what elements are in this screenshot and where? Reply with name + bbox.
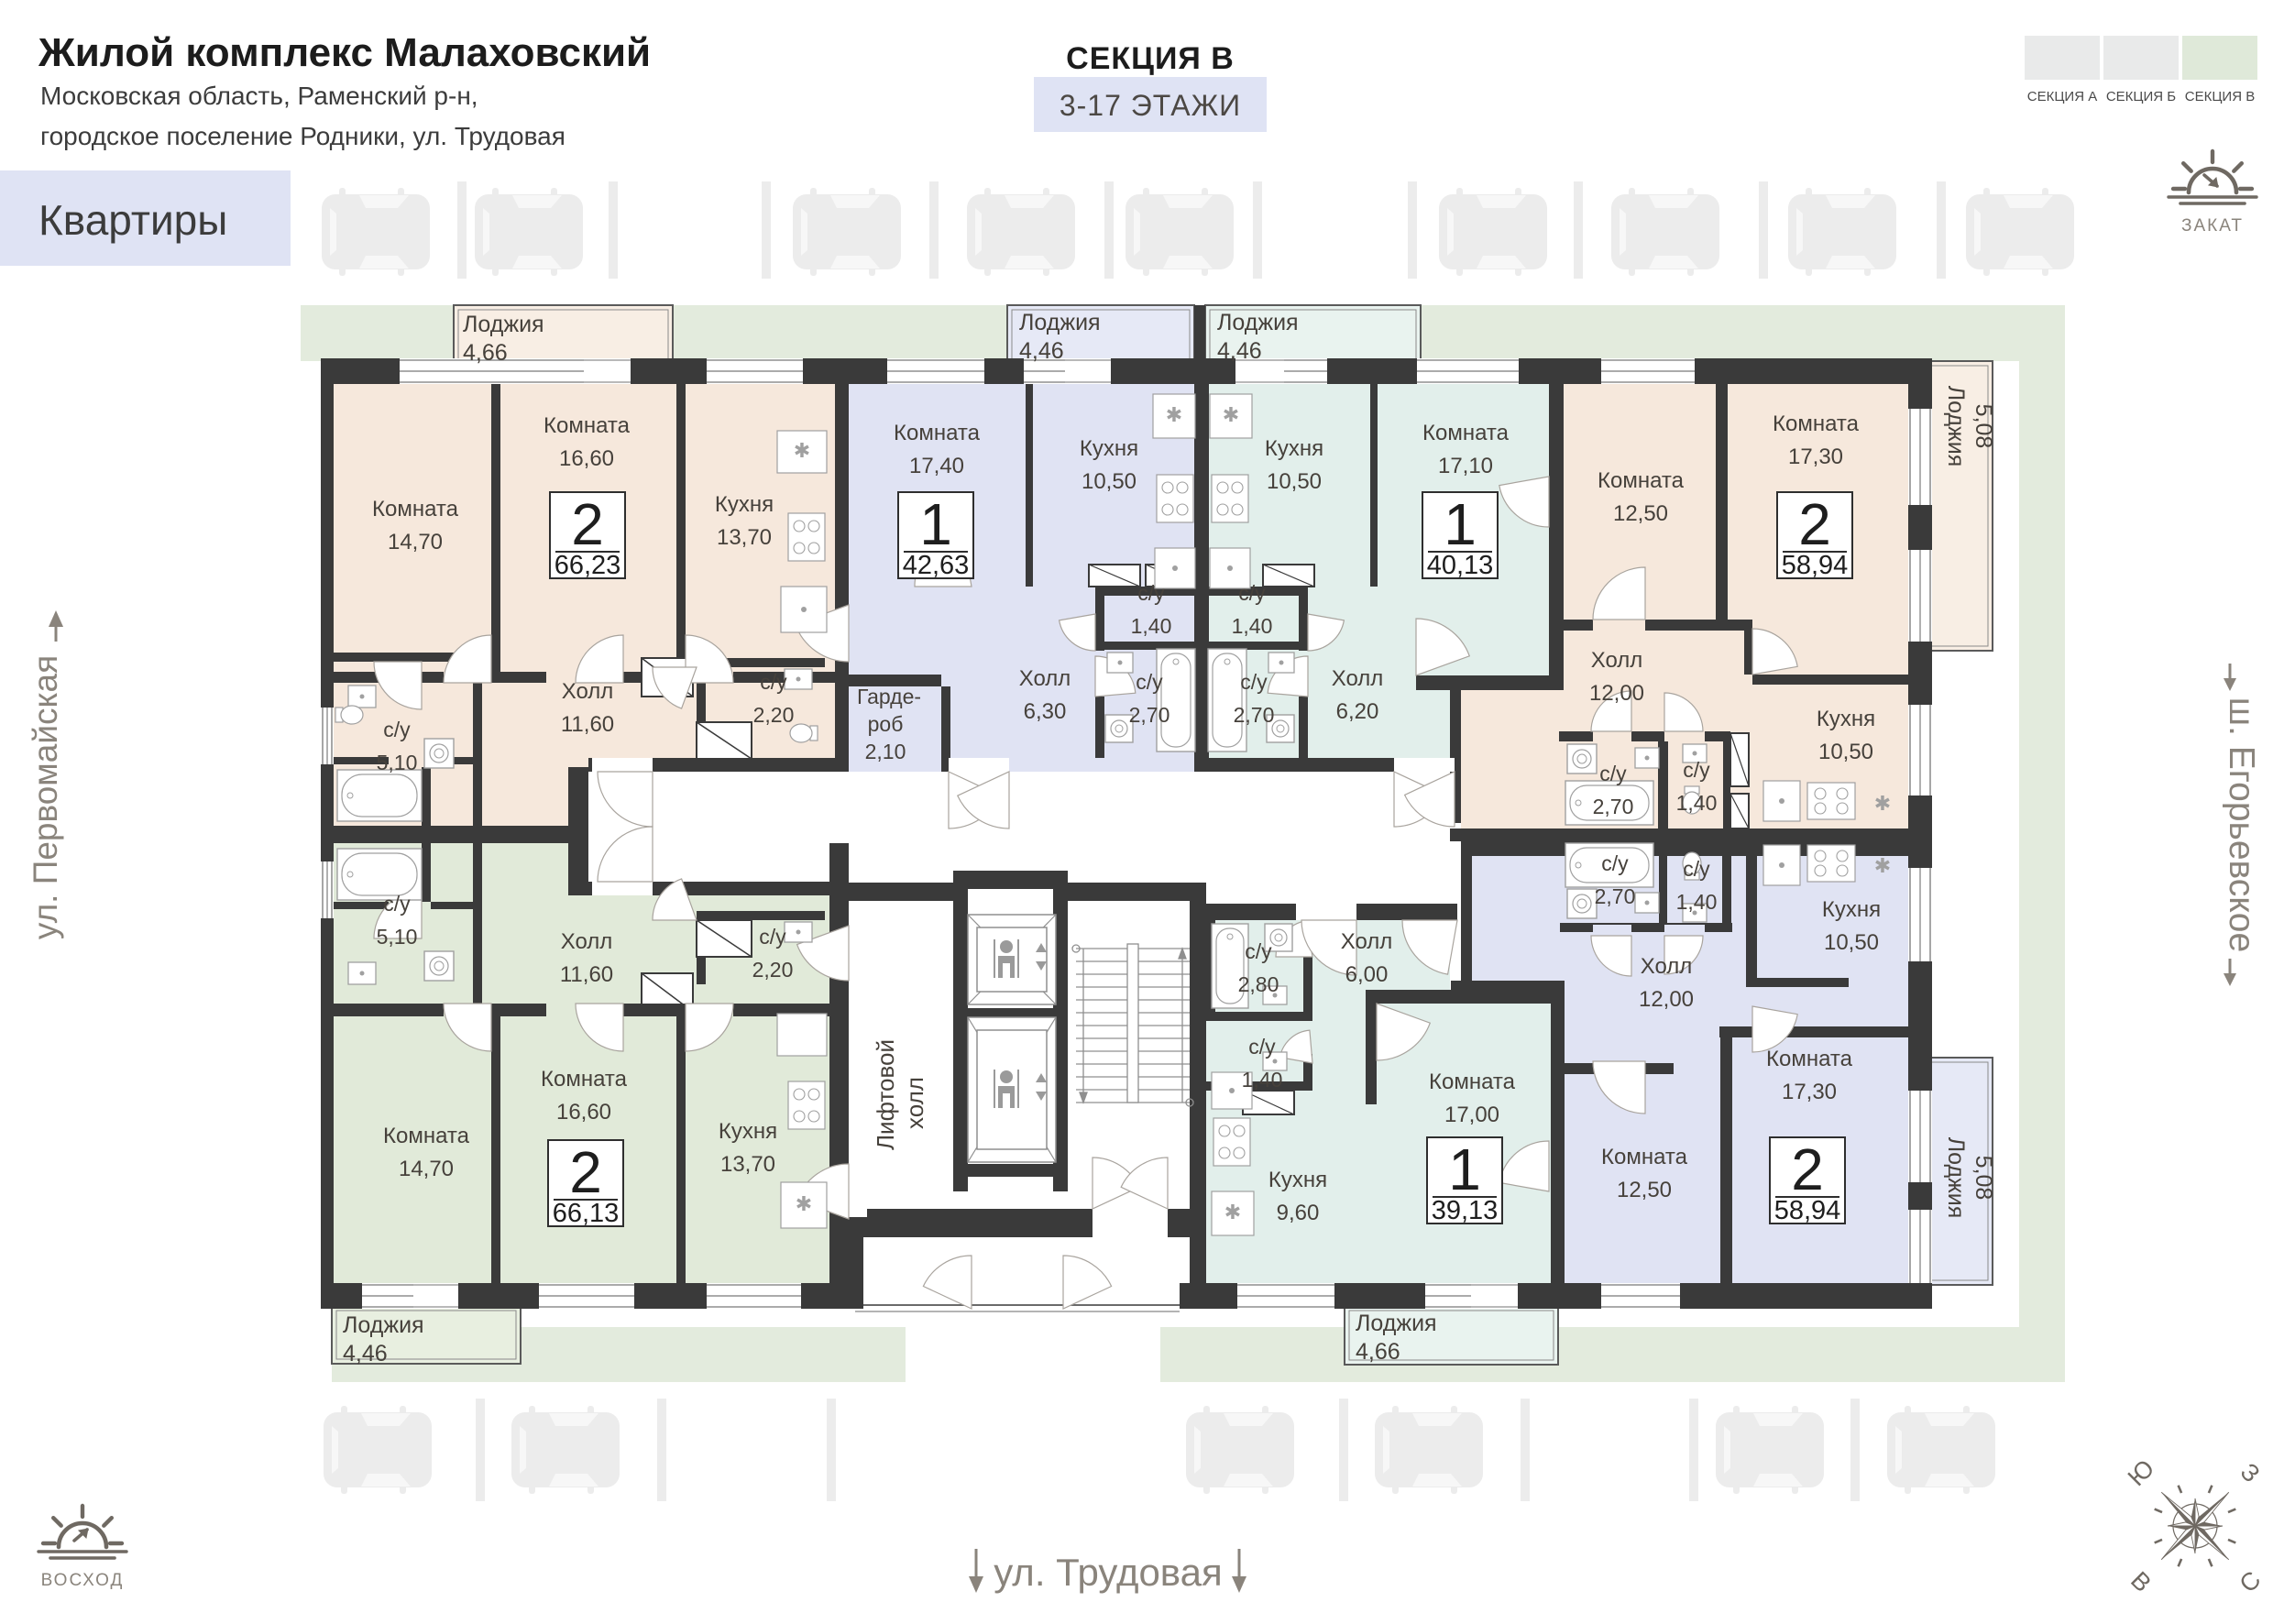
svg-text:ул. Первомайская: ул. Первомайская: [27, 655, 64, 939]
svg-text:1,40: 1,40: [1131, 614, 1172, 638]
svg-text:Лоджия: Лоджия: [1943, 386, 1969, 467]
svg-text:Кухня: Кухня: [1817, 707, 1875, 731]
svg-text:17,00: 17,00: [1444, 1103, 1499, 1127]
svg-text:СЕКЦИЯ В: СЕКЦИЯ В: [1066, 41, 1235, 76]
svg-text:4,46: 4,46: [343, 1341, 388, 1366]
svg-text:Холл: Холл: [1641, 954, 1693, 979]
svg-text:2,70: 2,70: [1595, 884, 1636, 908]
svg-text:12,00: 12,00: [1589, 681, 1644, 706]
svg-text:с/у: с/у: [1245, 939, 1272, 963]
svg-text:4,46: 4,46: [1217, 338, 1262, 364]
svg-text:1,40: 1,40: [1232, 614, 1273, 638]
svg-text:СЕКЦИЯ Б: СЕКЦИЯ Б: [2106, 89, 2176, 104]
svg-text:Гарде-: Гарде-: [857, 685, 921, 708]
svg-text:Московская область, Раменский: Московская область, Раменский р-н,: [40, 82, 478, 110]
svg-text:✱: ✱: [1166, 403, 1182, 426]
svg-text:Комната: Комната: [1601, 1145, 1688, 1169]
svg-text:Холл: Холл: [562, 679, 614, 704]
svg-text:11,60: 11,60: [560, 962, 613, 987]
svg-text:с/у: с/у: [383, 892, 411, 916]
svg-text:12,50: 12,50: [1613, 501, 1668, 526]
svg-text:1,40: 1,40: [1676, 791, 1718, 815]
svg-text:✱: ✱: [1223, 403, 1239, 426]
svg-text:✱: ✱: [794, 439, 810, 462]
svg-text:2,70: 2,70: [1129, 703, 1170, 727]
svg-text:Комната: Комната: [894, 421, 981, 445]
svg-text:Кухня: Кухня: [1268, 1168, 1327, 1192]
svg-text:✱: ✱: [1874, 854, 1891, 877]
svg-text:17,30: 17,30: [1788, 444, 1843, 469]
svg-text:1,40: 1,40: [1676, 890, 1718, 914]
svg-text:Кухня: Кухня: [719, 1119, 777, 1144]
svg-text:с/у: с/у: [1238, 581, 1266, 605]
svg-text:Комната: Комната: [1773, 411, 1860, 436]
svg-text:3-17 ЭТАЖИ: 3-17 ЭТАЖИ: [1060, 89, 1241, 122]
svg-text:12,00: 12,00: [1639, 987, 1694, 1012]
svg-text:ул. Трудовая: ул. Трудовая: [994, 1551, 1223, 1594]
svg-text:Комната: Комната: [383, 1124, 470, 1148]
svg-text:Холл: Холл: [1591, 648, 1643, 673]
svg-text:Лоджия: Лоджия: [463, 312, 544, 337]
svg-text:16,60: 16,60: [559, 446, 614, 471]
svg-text:10,50: 10,50: [1267, 469, 1322, 494]
svg-text:66,23: 66,23: [555, 551, 621, 580]
svg-text:42,63: 42,63: [903, 551, 970, 580]
svg-text:10,50: 10,50: [1824, 930, 1879, 955]
svg-text:с/у: с/у: [1601, 851, 1629, 875]
svg-text:Лоджия: Лоджия: [1217, 310, 1299, 335]
svg-text:городское поселение Родники, у: городское поселение Родники, ул. Трудова…: [40, 122, 566, 150]
svg-text:4,66: 4,66: [1356, 1339, 1400, 1365]
svg-text:1,40: 1,40: [1242, 1068, 1283, 1092]
svg-text:6,30: 6,30: [1024, 699, 1067, 724]
svg-text:5,10: 5,10: [377, 751, 418, 774]
svg-text:с/у: с/у: [1136, 670, 1163, 694]
svg-text:2,20: 2,20: [753, 703, 795, 727]
svg-text:1: 1: [1444, 491, 1477, 557]
svg-text:1: 1: [1448, 1136, 1481, 1202]
svg-text:58,94: 58,94: [1782, 551, 1849, 580]
svg-text:Комната: Комната: [1422, 421, 1510, 445]
svg-text:с/у: с/у: [383, 718, 411, 741]
svg-text:с/у: с/у: [1248, 1035, 1276, 1059]
svg-text:✱: ✱: [796, 1192, 812, 1215]
svg-text:2: 2: [571, 491, 604, 557]
svg-text:2: 2: [569, 1139, 602, 1205]
svg-text:ЗАКАТ: ЗАКАТ: [2181, 216, 2244, 236]
svg-text:10,50: 10,50: [1082, 469, 1137, 494]
svg-text:Комната: Комната: [1598, 468, 1685, 493]
svg-text:с/у: с/у: [1137, 581, 1165, 605]
svg-text:Кухня: Кухня: [715, 492, 774, 517]
svg-text:1: 1: [919, 491, 952, 557]
svg-text:с/у: с/у: [760, 670, 787, 694]
svg-text:2,70: 2,70: [1593, 795, 1634, 818]
svg-text:СЕКЦИЯ А: СЕКЦИЯ А: [2027, 89, 2097, 104]
svg-text:Квартиры: Квартиры: [38, 196, 227, 244]
svg-text:с/у: с/у: [1599, 762, 1627, 785]
svg-text:Комната: Комната: [541, 1067, 628, 1092]
svg-text:Холл: Холл: [561, 929, 613, 954]
svg-text:✱: ✱: [1224, 1201, 1241, 1223]
svg-text:Кухня: Кухня: [1822, 897, 1881, 922]
svg-text:16,60: 16,60: [556, 1100, 611, 1125]
svg-text:2: 2: [1798, 491, 1831, 557]
svg-text:6,20: 6,20: [1336, 699, 1379, 724]
svg-text:Комната: Комната: [372, 497, 459, 521]
svg-text:14,70: 14,70: [388, 530, 443, 554]
svg-text:39,13: 39,13: [1432, 1196, 1499, 1225]
svg-text:холл: холл: [901, 1077, 928, 1129]
svg-text:40,13: 40,13: [1427, 551, 1494, 580]
svg-text:Холл: Холл: [1332, 666, 1384, 691]
svg-text:с/у: с/у: [1683, 758, 1710, 782]
svg-text:Холл: Холл: [1341, 929, 1393, 954]
svg-text:Холл: Холл: [1019, 666, 1071, 691]
svg-text:5,08: 5,08: [1971, 404, 1996, 449]
svg-text:17,30: 17,30: [1782, 1080, 1837, 1104]
svg-text:Лоджия: Лоджия: [1019, 310, 1101, 335]
svg-text:5,10: 5,10: [377, 925, 418, 949]
svg-text:с/у: с/у: [759, 925, 786, 949]
svg-text:СЕКЦИЯ В: СЕКЦИЯ В: [2185, 89, 2255, 104]
svg-text:14,70: 14,70: [399, 1157, 454, 1181]
svg-text:12,50: 12,50: [1617, 1178, 1672, 1202]
svg-text:Лоджия: Лоджия: [1943, 1137, 1969, 1219]
svg-text:17,40: 17,40: [909, 454, 964, 478]
svg-text:Лоджия: Лоджия: [1356, 1311, 1437, 1336]
svg-text:13,70: 13,70: [720, 1152, 775, 1177]
svg-text:17,10: 17,10: [1438, 454, 1493, 478]
svg-text:2,70: 2,70: [1234, 703, 1275, 727]
svg-text:Комната: Комната: [1429, 1070, 1516, 1094]
svg-text:с/у: с/у: [1240, 670, 1268, 694]
svg-text:11,60: 11,60: [561, 712, 614, 737]
svg-text:Жилой комплекс Малаховский: Жилой комплекс Малаховский: [38, 30, 651, 75]
svg-text:13,70: 13,70: [717, 525, 772, 550]
svg-text:9,60: 9,60: [1277, 1201, 1320, 1225]
svg-text:с/у: с/у: [1683, 857, 1710, 881]
svg-text:Лоджия: Лоджия: [343, 1312, 424, 1338]
svg-text:ш. Егорьевское: ш. Егорьевское: [2222, 697, 2261, 952]
svg-text:Кухня: Кухня: [1080, 436, 1138, 461]
svg-text:✱: ✱: [1874, 792, 1891, 815]
svg-text:ВОСХОД: ВОСХОД: [41, 1571, 125, 1590]
svg-text:Комната: Комната: [1766, 1047, 1853, 1071]
svg-text:6,00: 6,00: [1345, 962, 1389, 987]
svg-text:Лифтовой: Лифтовой: [872, 1039, 899, 1150]
svg-text:66,13: 66,13: [553, 1199, 620, 1228]
svg-text:Комната: Комната: [544, 413, 631, 438]
svg-text:роб: роб: [868, 712, 904, 736]
svg-text:Кухня: Кухня: [1265, 436, 1323, 461]
svg-text:10,50: 10,50: [1818, 740, 1873, 764]
svg-text:2,80: 2,80: [1238, 972, 1279, 996]
svg-text:2,20: 2,20: [752, 958, 794, 982]
svg-text:58,94: 58,94: [1774, 1196, 1841, 1225]
svg-text:4,46: 4,46: [1019, 338, 1064, 364]
svg-text:4,66: 4,66: [463, 340, 508, 366]
svg-text:5,08: 5,08: [1971, 1156, 1996, 1201]
svg-text:2: 2: [1791, 1136, 1824, 1202]
svg-text:2,10: 2,10: [865, 740, 906, 763]
